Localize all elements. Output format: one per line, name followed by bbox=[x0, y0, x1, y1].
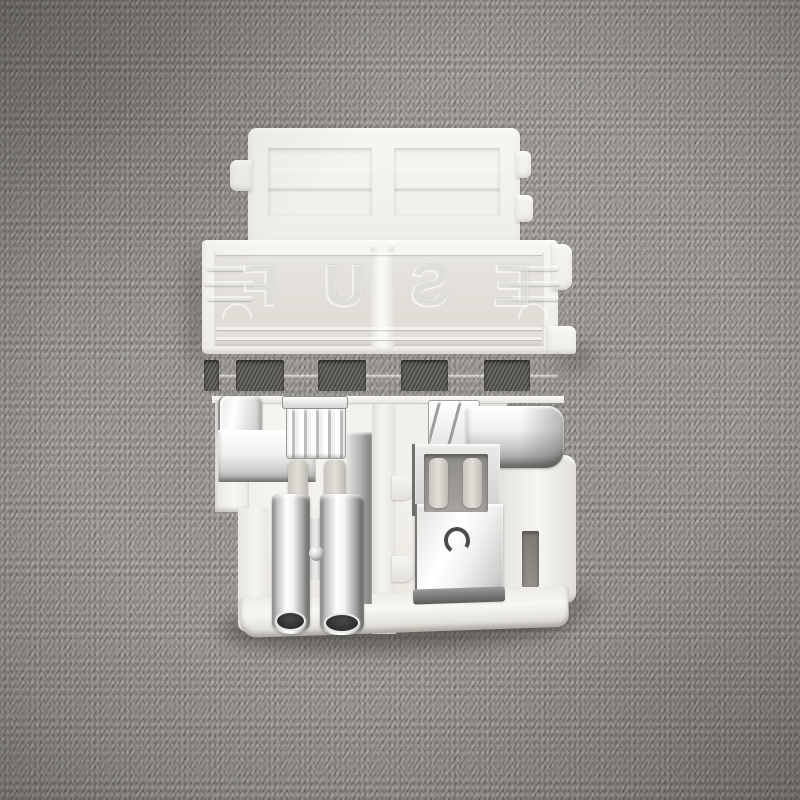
emboss-ridge-bottom-2 bbox=[216, 337, 542, 340]
divider-nub-lower bbox=[392, 556, 414, 582]
top-block-left-tab bbox=[230, 160, 252, 191]
embossed-fuse-text: FUSE bbox=[242, 252, 532, 322]
left-terminal-crimp-serrations bbox=[286, 407, 346, 459]
slot-row-ledge bbox=[212, 396, 564, 403]
barrel-opening-left bbox=[275, 611, 306, 631]
left-terminal-crimp-cap bbox=[282, 396, 348, 409]
vent-slot bbox=[401, 360, 448, 391]
vent-slot bbox=[318, 360, 366, 391]
right-shoulder-slot bbox=[522, 531, 539, 587]
top-block-recess-right bbox=[394, 148, 500, 216]
right-terminal-pin-left bbox=[429, 458, 448, 508]
left-terminal-ball-dimple bbox=[309, 546, 324, 561]
emboss-ridge-bottom-1 bbox=[216, 327, 542, 330]
barrel-opening-right bbox=[324, 613, 360, 633]
vent-slot bbox=[484, 360, 530, 391]
top-block-recess-left bbox=[268, 148, 372, 216]
photo-canvas: FUSE bbox=[0, 0, 800, 800]
mid-block-right-bump-lower bbox=[548, 326, 576, 354]
divider-nub-upper bbox=[392, 476, 414, 500]
vent-slot-partial bbox=[204, 360, 219, 391]
right-terminal-pin-right bbox=[463, 458, 482, 508]
top-block-right-bump-upper bbox=[516, 151, 531, 178]
vent-slot bbox=[236, 360, 284, 391]
right-terminal-bottom-edge bbox=[413, 586, 505, 604]
top-block-right-bump-lower bbox=[516, 195, 533, 222]
